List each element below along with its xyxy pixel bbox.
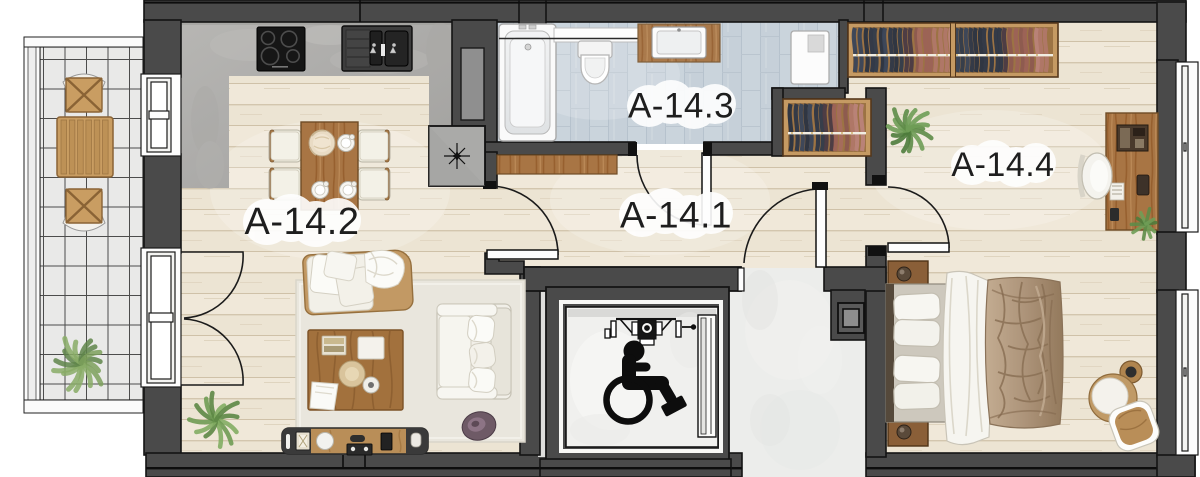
- svg-text:A-14.1: A-14.1: [620, 195, 732, 236]
- svg-text:A-14.3: A-14.3: [628, 87, 734, 126]
- svg-text:A-14.2: A-14.2: [245, 201, 360, 243]
- svg-text:A-14.4: A-14.4: [951, 146, 1054, 184]
